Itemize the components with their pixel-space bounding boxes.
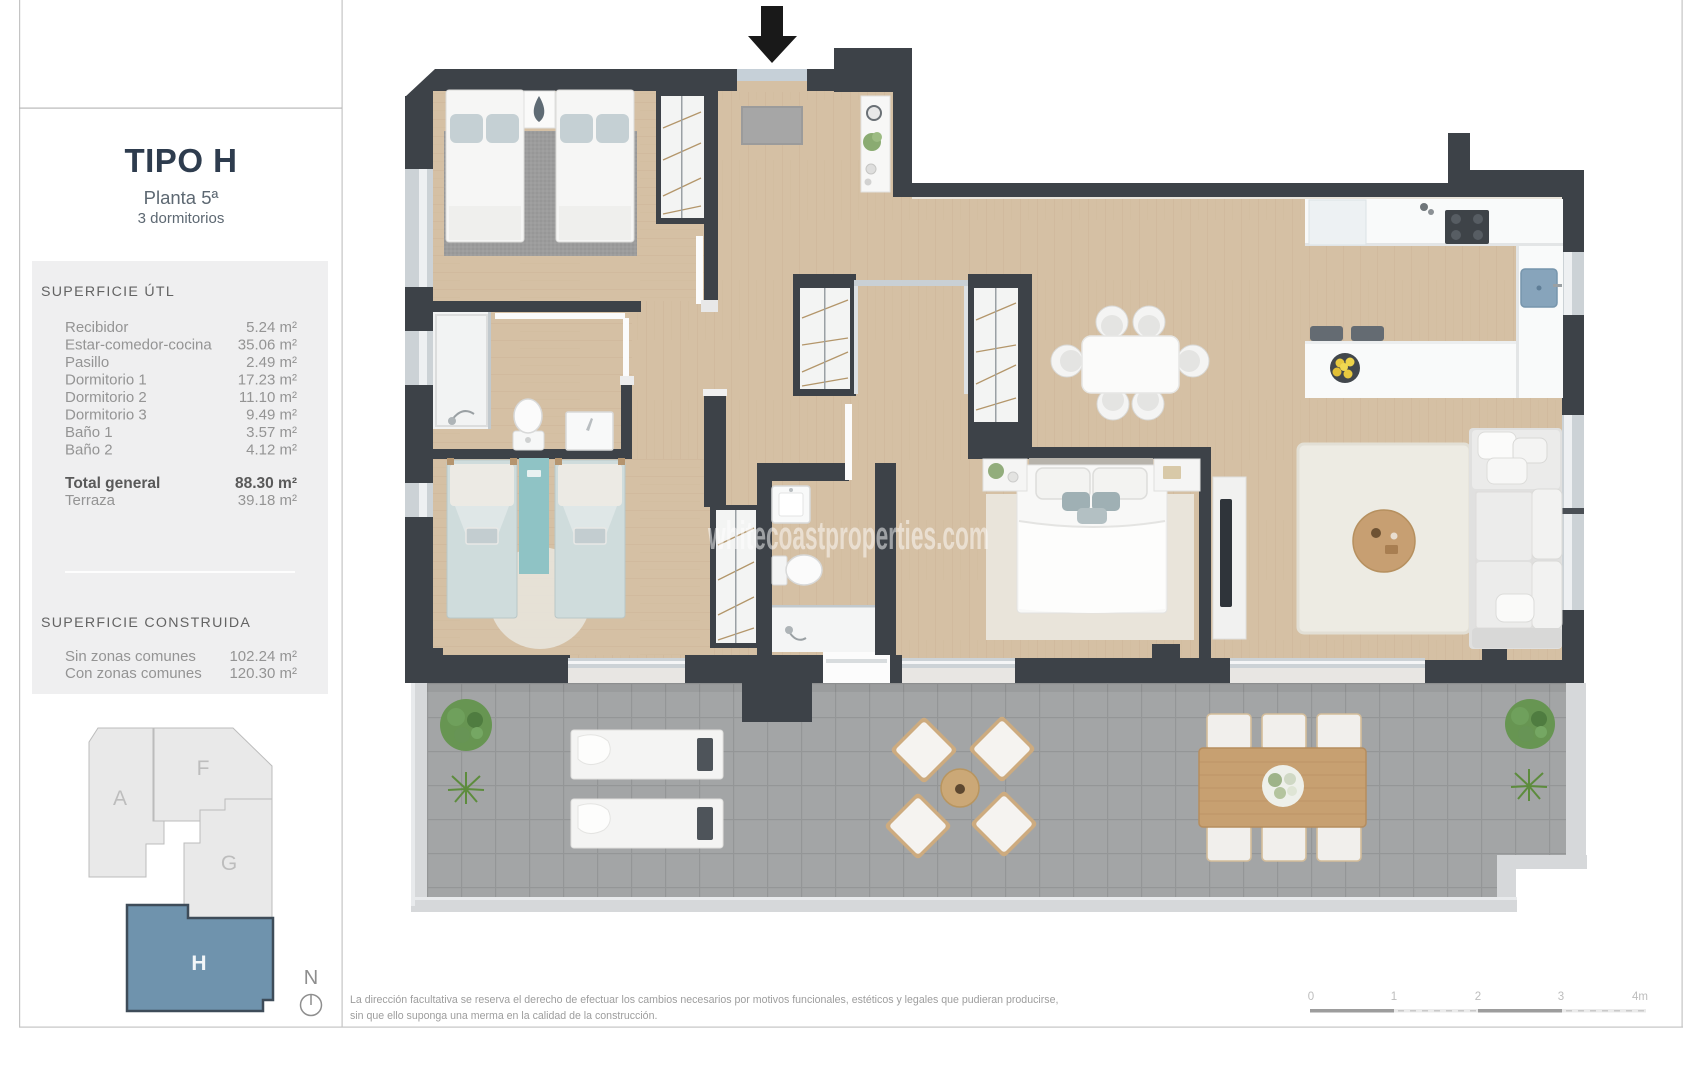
svg-text:Dormitorio 3: Dormitorio 3	[65, 407, 147, 424]
svg-text:Terraza: Terraza	[65, 492, 116, 509]
svg-text:39.18 m²: 39.18 m²	[238, 492, 297, 509]
svg-text:2: 2	[1475, 991, 1481, 1003]
svg-text:120.30 m²: 120.30 m²	[229, 665, 297, 682]
svg-text:N: N	[304, 967, 318, 989]
svg-text:H: H	[191, 952, 206, 975]
svg-text:3.57 m²: 3.57 m²	[246, 424, 297, 441]
svg-text:SUPERFICIE CONSTRUIDA: SUPERFICIE CONSTRUIDA	[41, 615, 251, 631]
svg-text:11.10 m²: 11.10 m²	[239, 389, 297, 406]
svg-text:1: 1	[1391, 991, 1397, 1003]
svg-text:5.24 m²: 5.24 m²	[246, 319, 297, 336]
svg-text:3: 3	[1558, 991, 1564, 1003]
svg-text:Dormitorio 2: Dormitorio 2	[65, 389, 147, 406]
svg-text:88.30 m²: 88.30 m²	[235, 475, 297, 492]
svg-text:Baño 2: Baño 2	[65, 442, 113, 459]
svg-text:17.23 m²: 17.23 m²	[238, 372, 297, 389]
svg-text:F: F	[197, 757, 210, 780]
svg-text:9.49 m²: 9.49 m²	[246, 407, 297, 424]
svg-text:A: A	[113, 787, 127, 810]
svg-text:102.24 m²: 102.24 m²	[229, 648, 297, 665]
svg-text:Con zonas comunes: Con zonas comunes	[65, 665, 202, 682]
svg-text:2.49 m²: 2.49 m²	[246, 354, 297, 371]
svg-text:0: 0	[1308, 991, 1314, 1003]
svg-text:Sin zonas comunes: Sin zonas comunes	[65, 648, 196, 665]
svg-text:G: G	[221, 852, 237, 875]
svg-text:sin que ello suponga una merma: sin que ello suponga una merma en la cal…	[350, 1010, 657, 1022]
svg-text:La dirección facultativa se re: La dirección facultativa se reserva el d…	[350, 994, 1058, 1006]
svg-text:SUPERFICIE ÚTL: SUPERFICIE ÚTL	[41, 283, 175, 300]
svg-text:Baño 1: Baño 1	[65, 424, 113, 441]
svg-text:Recibidor: Recibidor	[65, 319, 128, 336]
svg-text:Pasillo: Pasillo	[65, 354, 109, 371]
svg-text:Planta 5ª: Planta 5ª	[144, 187, 219, 208]
svg-text:whitecoastproperties.com: whitecoastproperties.com	[707, 514, 989, 558]
svg-text:4.12 m²: 4.12 m²	[246, 442, 297, 459]
svg-text:3 dormitorios: 3 dormitorios	[138, 210, 225, 227]
svg-text:Estar-comedor-cocina: Estar-comedor-cocina	[65, 337, 212, 354]
svg-text:Dormitorio 1: Dormitorio 1	[65, 372, 147, 389]
svg-text:4m: 4m	[1632, 991, 1648, 1003]
svg-text:Total general: Total general	[65, 475, 160, 492]
svg-text:TIPO H: TIPO H	[124, 142, 237, 179]
svg-text:35.06 m²: 35.06 m²	[238, 337, 297, 354]
